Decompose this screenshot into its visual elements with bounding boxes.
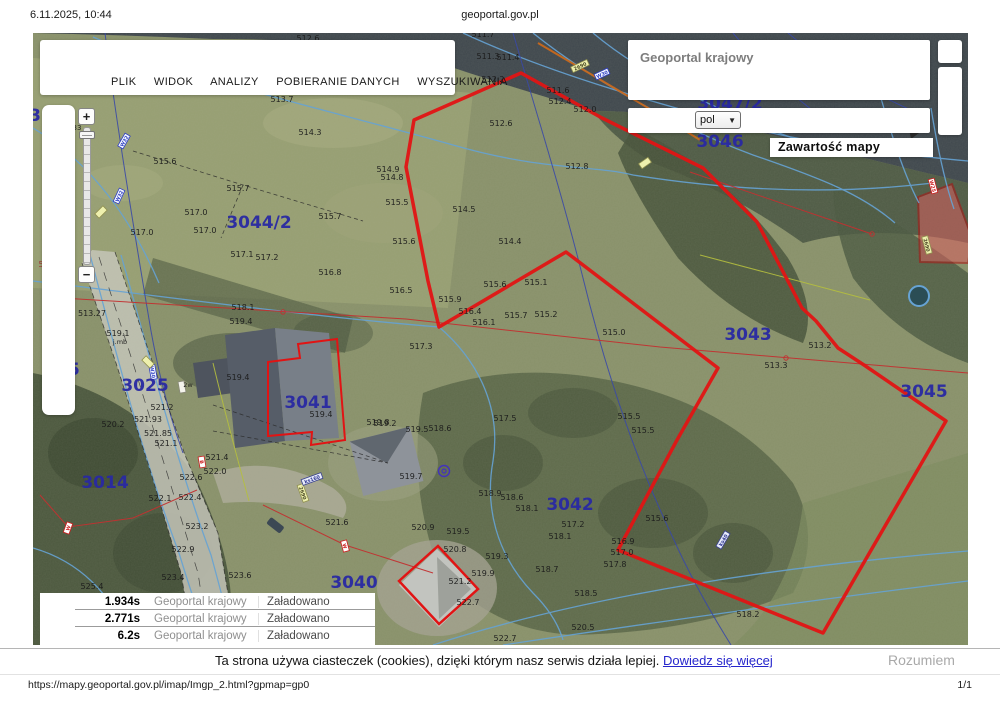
elevation-label: 515.6 bbox=[393, 237, 416, 246]
log-status: Załadowano bbox=[258, 596, 330, 608]
elevation-label: 523.2 bbox=[186, 522, 209, 531]
loading-log-row: 1.934s Geoportal krajowy Załadowano bbox=[40, 593, 375, 610]
elevation-label: 516.8 bbox=[319, 268, 342, 277]
zoom-in-button[interactable]: + bbox=[78, 108, 95, 125]
elevation-label: 521.85 bbox=[144, 429, 172, 438]
cookie-accept-button[interactable]: Rozumiem bbox=[888, 652, 955, 668]
building-roof bbox=[225, 328, 285, 448]
chevron-down-icon: ▼ bbox=[728, 116, 736, 125]
log-status: Załadowano bbox=[258, 630, 330, 642]
right-toolbar-panel[interactable] bbox=[938, 67, 962, 135]
elevation-label: 519.4 bbox=[230, 317, 253, 326]
elevation-label: 517.0 bbox=[131, 228, 154, 237]
elevation-label: 517.3 bbox=[410, 342, 433, 351]
elevation-label: 520.2 bbox=[102, 420, 125, 429]
parcel-label: 3043 bbox=[724, 325, 771, 345]
menu-items: PLIK WIDOK ANALIZY POBIERANIE DANYCH WYS… bbox=[111, 76, 522, 88]
print-site-title: geoportal.gov.pl bbox=[0, 9, 1000, 21]
elevation-label: 523.4 bbox=[162, 573, 185, 582]
log-time: 1.934s bbox=[40, 596, 154, 608]
menu-item-plik[interactable]: PLIK bbox=[111, 76, 136, 88]
elevation-label: 517.1 bbox=[231, 250, 254, 259]
layer-panel-title: Geoportal krajowy bbox=[640, 50, 753, 65]
elevation-label: 515.7 bbox=[227, 184, 250, 193]
elevation-label: 519.1 bbox=[107, 329, 130, 338]
loading-log-row: 2.771s Geoportal krajowy Załadowano bbox=[40, 610, 375, 627]
elevation-label: 522.7 bbox=[457, 598, 480, 607]
elevation-label: 521.2 bbox=[151, 403, 174, 412]
elevation-label: 522.1 bbox=[149, 494, 172, 503]
elevation-label: 519.4 bbox=[227, 373, 250, 382]
elevation-label: 522.9 bbox=[172, 545, 195, 554]
left-toolbar-panel bbox=[42, 105, 75, 415]
parcel-label: 3044/2 bbox=[226, 213, 291, 233]
log-layer: Geoportal krajowy bbox=[154, 630, 258, 642]
elevation-label: 521.6 bbox=[326, 518, 349, 527]
elevation-label: 518.5 bbox=[575, 589, 598, 598]
map-contents-bar[interactable]: Zawartość mapy bbox=[770, 138, 933, 157]
elevation-label: 511.4 bbox=[497, 53, 520, 62]
cookie-more-link[interactable]: Dowiedz się więcej bbox=[663, 653, 773, 668]
cookie-message: Ta strona używa ciasteczek (cookies), dz… bbox=[215, 653, 773, 668]
zoom-out-button[interactable]: − bbox=[78, 266, 95, 283]
parcel-label: 3025 bbox=[121, 376, 168, 396]
menu-item-analizy[interactable]: ANALIZY bbox=[210, 76, 259, 88]
elevation-label: 520.9 bbox=[412, 523, 435, 532]
log-time: 2.771s bbox=[40, 613, 154, 625]
elevation-label: 521.1 bbox=[155, 439, 178, 448]
elevation-label: 515.7 bbox=[505, 311, 528, 320]
parcel-label: 3 bbox=[33, 106, 41, 126]
parcel-label: 3041 bbox=[284, 393, 331, 413]
elevation-label: 512.6 bbox=[490, 119, 513, 128]
zoom-slider-handle[interactable] bbox=[79, 131, 95, 139]
elevation-label: 515.0 bbox=[603, 328, 626, 337]
parcel-label: 3045 bbox=[900, 382, 947, 402]
elevation-label: 519.5 bbox=[447, 527, 470, 536]
layer-panel: Geoportal krajowy bbox=[628, 40, 930, 100]
elevation-label: 523.6 bbox=[229, 571, 252, 580]
elevation-label: 515.5 bbox=[386, 198, 409, 207]
log-time: 6.2s bbox=[40, 630, 154, 642]
elevation-label: 515.6 bbox=[484, 280, 507, 289]
elevation-label: 515.5 bbox=[618, 412, 641, 421]
elevation-label: 516.9 bbox=[612, 537, 635, 546]
zoom-slider-track[interactable] bbox=[83, 127, 91, 265]
elevation-label: 515.7 bbox=[319, 212, 342, 221]
elevation-label: 511.7 bbox=[472, 33, 495, 39]
elevation-label: 518.1 bbox=[232, 303, 255, 312]
elevation-label: 514.5 bbox=[453, 205, 476, 214]
elevation-label: 512.4 bbox=[549, 97, 572, 106]
elevation-label: 519.7 bbox=[400, 472, 423, 481]
language-select[interactable]: pol ▼ bbox=[695, 111, 741, 129]
elevation-label: 514.8 bbox=[381, 173, 404, 182]
pond bbox=[909, 286, 929, 306]
elevation-label: 513.3 bbox=[765, 361, 788, 370]
elevation-label: 2w bbox=[183, 381, 193, 389]
elevation-label: 519.8 bbox=[367, 418, 390, 427]
log-status: Załadowano bbox=[258, 613, 330, 625]
elevation-label: 513.2 bbox=[809, 341, 832, 350]
elevation-label: 515.6 bbox=[646, 514, 669, 523]
elevation-label: 515.9 bbox=[439, 295, 462, 304]
elevation-label: 515.6 bbox=[154, 157, 177, 166]
menu-item-wyszukiwania[interactable]: WYSZUKIWANIA bbox=[417, 76, 508, 88]
elevation-label: 518.1 bbox=[516, 504, 539, 513]
map-contents-label: Zawartość mapy bbox=[778, 140, 880, 154]
elevation-label: 514.4 bbox=[499, 237, 522, 246]
elevation-label: 513.7 bbox=[271, 95, 294, 104]
elevation-label: 518.6 bbox=[429, 424, 452, 433]
elevation-label: 519.3 bbox=[486, 552, 509, 561]
cookie-message-text: Ta strona używa ciasteczek (cookies), dz… bbox=[215, 653, 663, 668]
elevation-label: 517.2 bbox=[562, 520, 585, 529]
parcel-label: 3014 bbox=[81, 473, 128, 493]
elevation-label: 512.0 bbox=[574, 105, 597, 114]
print-url: https://mapy.geoportal.gov.pl/imap/Imgp_… bbox=[28, 679, 309, 691]
elevation-label: 520.8 bbox=[444, 545, 467, 554]
elevation-label: 518.9 bbox=[479, 489, 502, 498]
elevation-label: 525.4 bbox=[81, 582, 104, 591]
elevation-label: 522.7 bbox=[494, 634, 517, 643]
language-bar: pol ▼ bbox=[628, 108, 930, 133]
parcel-label: 3046 bbox=[696, 132, 743, 152]
elevation-label: 520.5 bbox=[572, 623, 595, 632]
elevation-label: 515.5 bbox=[632, 426, 655, 435]
elevation-label: 516.1 bbox=[473, 318, 496, 327]
elevation-label: 522.6 bbox=[180, 473, 203, 482]
elevation-label: 518.2 bbox=[737, 610, 760, 619]
elevation-label: 519.9 bbox=[472, 569, 495, 578]
elevation-label: 517.8 bbox=[604, 560, 627, 569]
elevation-label: 515.2 bbox=[535, 310, 558, 319]
elevation-label: 516.4 bbox=[459, 307, 482, 316]
parcel-label: 3040 bbox=[330, 573, 377, 593]
log-layer: Geoportal krajowy bbox=[154, 596, 258, 608]
elevation-label: 515.1 bbox=[525, 278, 548, 287]
elevation-label: 517.5 bbox=[494, 414, 517, 423]
loading-log-row: 6.2s Geoportal krajowy Załadowano bbox=[40, 627, 375, 644]
elevation-label: 517.0 bbox=[194, 226, 217, 235]
elevation-label: 517.0 bbox=[185, 208, 208, 217]
elevation-label: 517.0 bbox=[611, 548, 634, 557]
elevation-label: 518.1 bbox=[549, 532, 572, 541]
elevation-label: 517.2 bbox=[256, 253, 279, 262]
elevation-label: 522.0 bbox=[204, 467, 227, 476]
right-toolbar-button[interactable] bbox=[938, 40, 962, 63]
parcel-label: 3042 bbox=[546, 495, 593, 515]
menu-bar: PLIK WIDOK ANALIZY POBIERANIE DANYCH WYS… bbox=[40, 40, 455, 95]
elevation-label: 518.7 bbox=[536, 565, 559, 574]
cookie-banner: Ta strona używa ciasteczek (cookies), dz… bbox=[0, 648, 1000, 675]
elevation-label: j.mb bbox=[112, 338, 127, 346]
menu-item-widok[interactable]: WIDOK bbox=[154, 76, 193, 88]
elevation-label: 522.4 bbox=[179, 493, 202, 502]
elevation-label: 521.93 bbox=[134, 415, 162, 424]
elevation-label: 516.5 bbox=[390, 286, 413, 295]
print-page-number: 1/1 bbox=[957, 679, 972, 691]
language-select-value: pol bbox=[700, 114, 715, 126]
log-layer: Geoportal krajowy bbox=[154, 613, 258, 625]
loading-log: 1.934s Geoportal krajowy Załadowano 2.77… bbox=[40, 593, 375, 646]
elevation-label: 513.27 bbox=[78, 309, 106, 318]
elevation-label: 518.6 bbox=[501, 493, 524, 502]
elevation-label: 512.8 bbox=[566, 162, 589, 171]
elevation-label: 521.4 bbox=[206, 453, 229, 462]
elevation-label: 519.5 bbox=[406, 425, 429, 434]
elevation-label: 514.3 bbox=[299, 128, 322, 137]
elevation-label: 511.6 bbox=[547, 86, 570, 95]
elevation-label: 521.2 bbox=[449, 577, 472, 586]
menu-item-pobieranie-danych[interactable]: POBIERANIE DANYCH bbox=[276, 76, 400, 88]
